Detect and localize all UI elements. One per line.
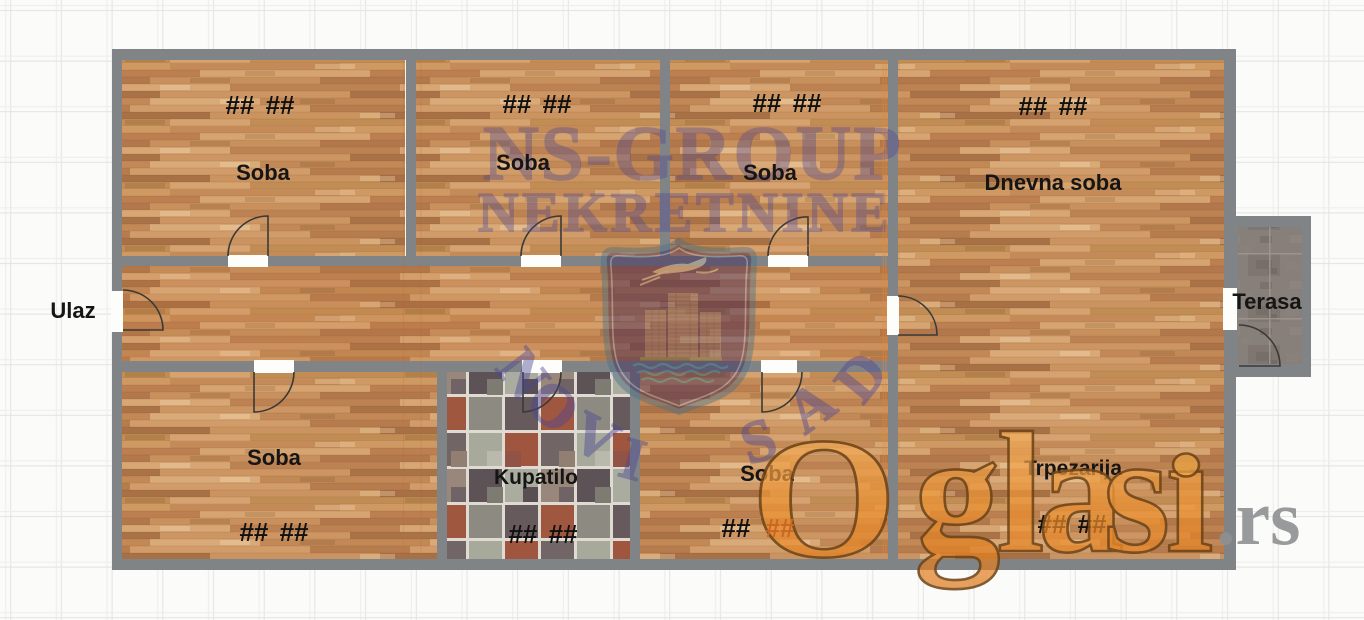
svg-text:## ##: ## ## xyxy=(508,519,578,549)
svg-text:##: ## xyxy=(722,513,751,543)
svg-text:glası: glası xyxy=(914,398,1213,589)
svg-text:## ##: ## ## xyxy=(502,89,572,119)
svg-text:Kupatilo: Kupatilo xyxy=(494,466,578,489)
svg-text:Dnevna soba: Dnevna soba xyxy=(985,170,1123,195)
svg-text:NEKRETNINE: NEKRETNINE xyxy=(478,182,893,244)
svg-text:## ##: ## ## xyxy=(1018,91,1088,121)
svg-text:## ##: ## ## xyxy=(225,90,295,120)
svg-text:Soba: Soba xyxy=(743,160,798,185)
svg-text:.rs: .rs xyxy=(1216,474,1300,561)
svg-text:O: O xyxy=(751,403,897,594)
svg-text:Terasa: Terasa xyxy=(1232,289,1302,314)
svg-text:Ulaz: Ulaz xyxy=(50,298,95,323)
svg-text:Soba: Soba xyxy=(496,150,551,175)
svg-text:##: ## xyxy=(766,513,795,543)
svg-text:## ##: ## ## xyxy=(239,517,309,547)
svg-text:## ##: ## ## xyxy=(752,88,822,118)
svg-text:Soba: Soba xyxy=(247,445,302,470)
svg-text:Soba: Soba xyxy=(236,160,291,185)
